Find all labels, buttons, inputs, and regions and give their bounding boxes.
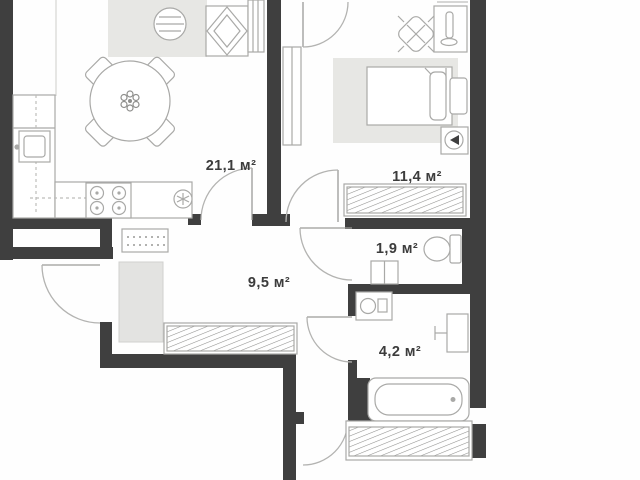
- armchair-icon: [206, 6, 248, 56]
- wardrobe-hatch-icon: [164, 323, 297, 354]
- cabinet-icon: [119, 262, 163, 342]
- nightstand-icon: [450, 78, 467, 114]
- room-label-wc: 1,9 м²: [376, 241, 418, 257]
- door-arc-icon: [300, 228, 352, 280]
- door-arc-icon: [286, 170, 338, 222]
- washing-machine-icon: [356, 292, 392, 320]
- coffee-table-icon: [154, 8, 186, 40]
- desk-chair-icon: [396, 14, 436, 54]
- room-label-hallway: 9,5 м²: [248, 275, 290, 291]
- stove-icon: [86, 183, 131, 218]
- toilet-icon: [424, 235, 461, 263]
- dining-table-icon: [84, 56, 176, 148]
- media-box-icon: [441, 127, 468, 154]
- kitchen-sink-icon: [15, 131, 50, 162]
- bed-icon: [367, 67, 452, 125]
- bathroom-sink-icon: [435, 314, 468, 352]
- floor-plan: 21,1 м² 11,4 м² 9,5 м² 1,9 м² 4,2 м²: [0, 0, 640, 480]
- door-arc-icon: [201, 168, 252, 220]
- small-sink-icon: [174, 190, 192, 208]
- door-arc-icon: [42, 265, 100, 323]
- door-arc-icon: [303, 2, 348, 47]
- room-label-kitchen-living: 21,1 м²: [206, 158, 257, 174]
- bathtub-icon: [368, 378, 469, 421]
- wardrobe-hatch-icon: [344, 184, 466, 216]
- door-arc-icon: [307, 317, 352, 362]
- desk-icon: [434, 6, 467, 52]
- floor-plan-canvas: 21,1 м² 11,4 м² 9,5 м² 1,9 м² 4,2 м²: [0, 0, 640, 480]
- washbasin-icon: [371, 261, 398, 284]
- shoe-rack-icon: [122, 229, 168, 252]
- wardrobe-hatch-icon: [346, 421, 472, 460]
- room-label-bathroom: 4,2 м²: [379, 344, 421, 360]
- sofa-edge-icon: [248, 0, 264, 52]
- door-arc-icon: [303, 420, 348, 465]
- nook-wardrobe-icon: [283, 47, 301, 145]
- room-label-bedroom: 11,4 м²: [392, 169, 442, 185]
